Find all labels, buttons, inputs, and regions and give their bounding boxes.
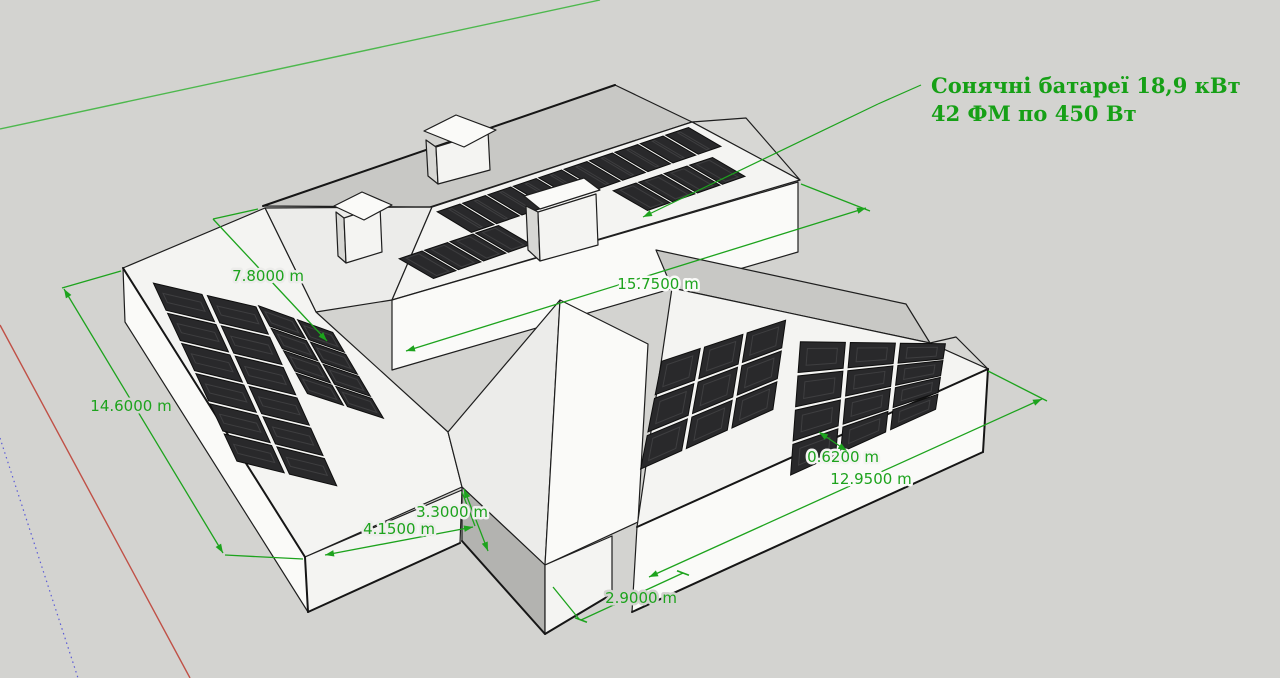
sketchup-viewport[interactable]: 7.8000 m 14.6000 m 15.7500 m 4.1500 m 3.…: [0, 0, 1280, 678]
annotation-line-2: 42 ФМ по 450 Вт: [931, 101, 1137, 126]
dim-label-front-offset: 4.1500 m: [363, 520, 435, 538]
dim-label-wing-gap: 2.9000 m: [605, 589, 677, 607]
dim-label-porch-side: 3.3000 m: [416, 503, 488, 521]
dim-label-right-wing-length: 12.9500 m: [830, 470, 911, 488]
dim-label-roof-width-left: 7.8000 m: [232, 267, 304, 285]
solar-panel: [848, 343, 895, 368]
dim-label-array-gap: 0.6200 m: [807, 448, 879, 466]
dim-label-main-roof-length: 15.7500 m: [617, 275, 698, 293]
annotation-line-1: Сонячні батареї 18,9 кВт: [931, 73, 1241, 98]
solar-panel: [798, 342, 845, 373]
dim-label-house-side-left: 14.6000 m: [90, 397, 171, 415]
